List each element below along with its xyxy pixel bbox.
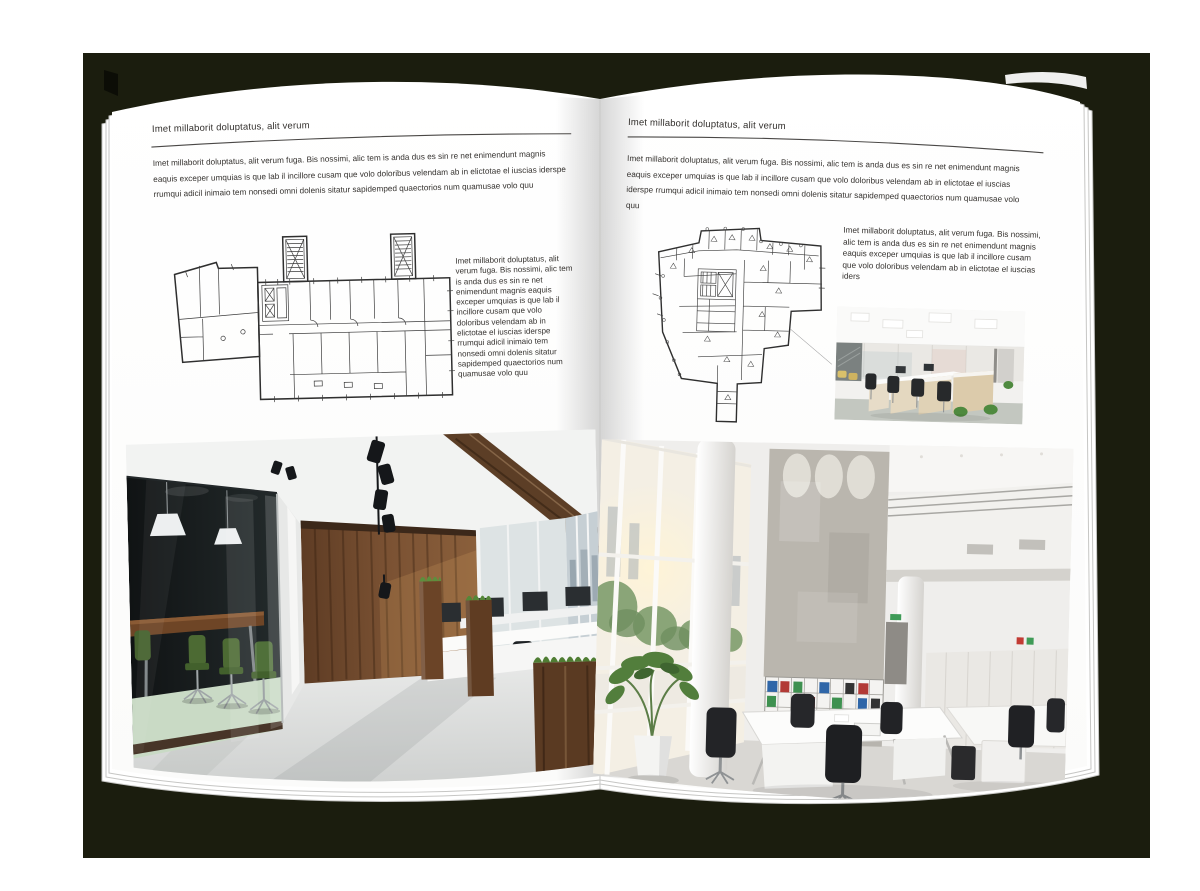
right-intro-paragraph: Imet millaborit doluptatus, alit verum f…	[626, 151, 1035, 224]
right-side-column: Imet millaborit doluptatus, alit verum f…	[842, 225, 1041, 288]
left-intro-paragraph: Imet millaborit doluptatus, alit verum f…	[153, 146, 568, 203]
plan-leader-line	[790, 329, 833, 364]
magazine-mockup: Imet millaborit doluptatus, alit verum I…	[0, 0, 1200, 891]
left-floor-plan	[160, 221, 460, 414]
waste-bin	[951, 746, 976, 781]
right-office-photo	[593, 436, 1074, 804]
glass-meeting-room	[126, 473, 283, 759]
exit-sign	[890, 614, 901, 620]
left-office-photo	[126, 429, 604, 788]
concrete-feature-wall	[764, 449, 890, 680]
left-page-header: Imet millaborit doluptatus, alit verum	[152, 120, 310, 135]
plan-interior-walls	[650, 227, 827, 406]
mezzanine-balcony	[886, 478, 1073, 587]
left-side-column: Imet millaborit doluptatus, alit verum f…	[455, 254, 576, 380]
lounge-corner	[835, 342, 862, 381]
right-page: Imet millaborit doluptatus, alit verum I…	[582, 94, 1090, 807]
left-page: Imet millaborit doluptatus, alit verum I…	[111, 89, 615, 777]
right-page-header: Imet millaborit doluptatus, alit verum	[628, 117, 786, 132]
right-small-office-photo	[834, 306, 1025, 424]
right-floor-plan	[636, 213, 837, 430]
plan-interior-walls	[178, 236, 456, 405]
